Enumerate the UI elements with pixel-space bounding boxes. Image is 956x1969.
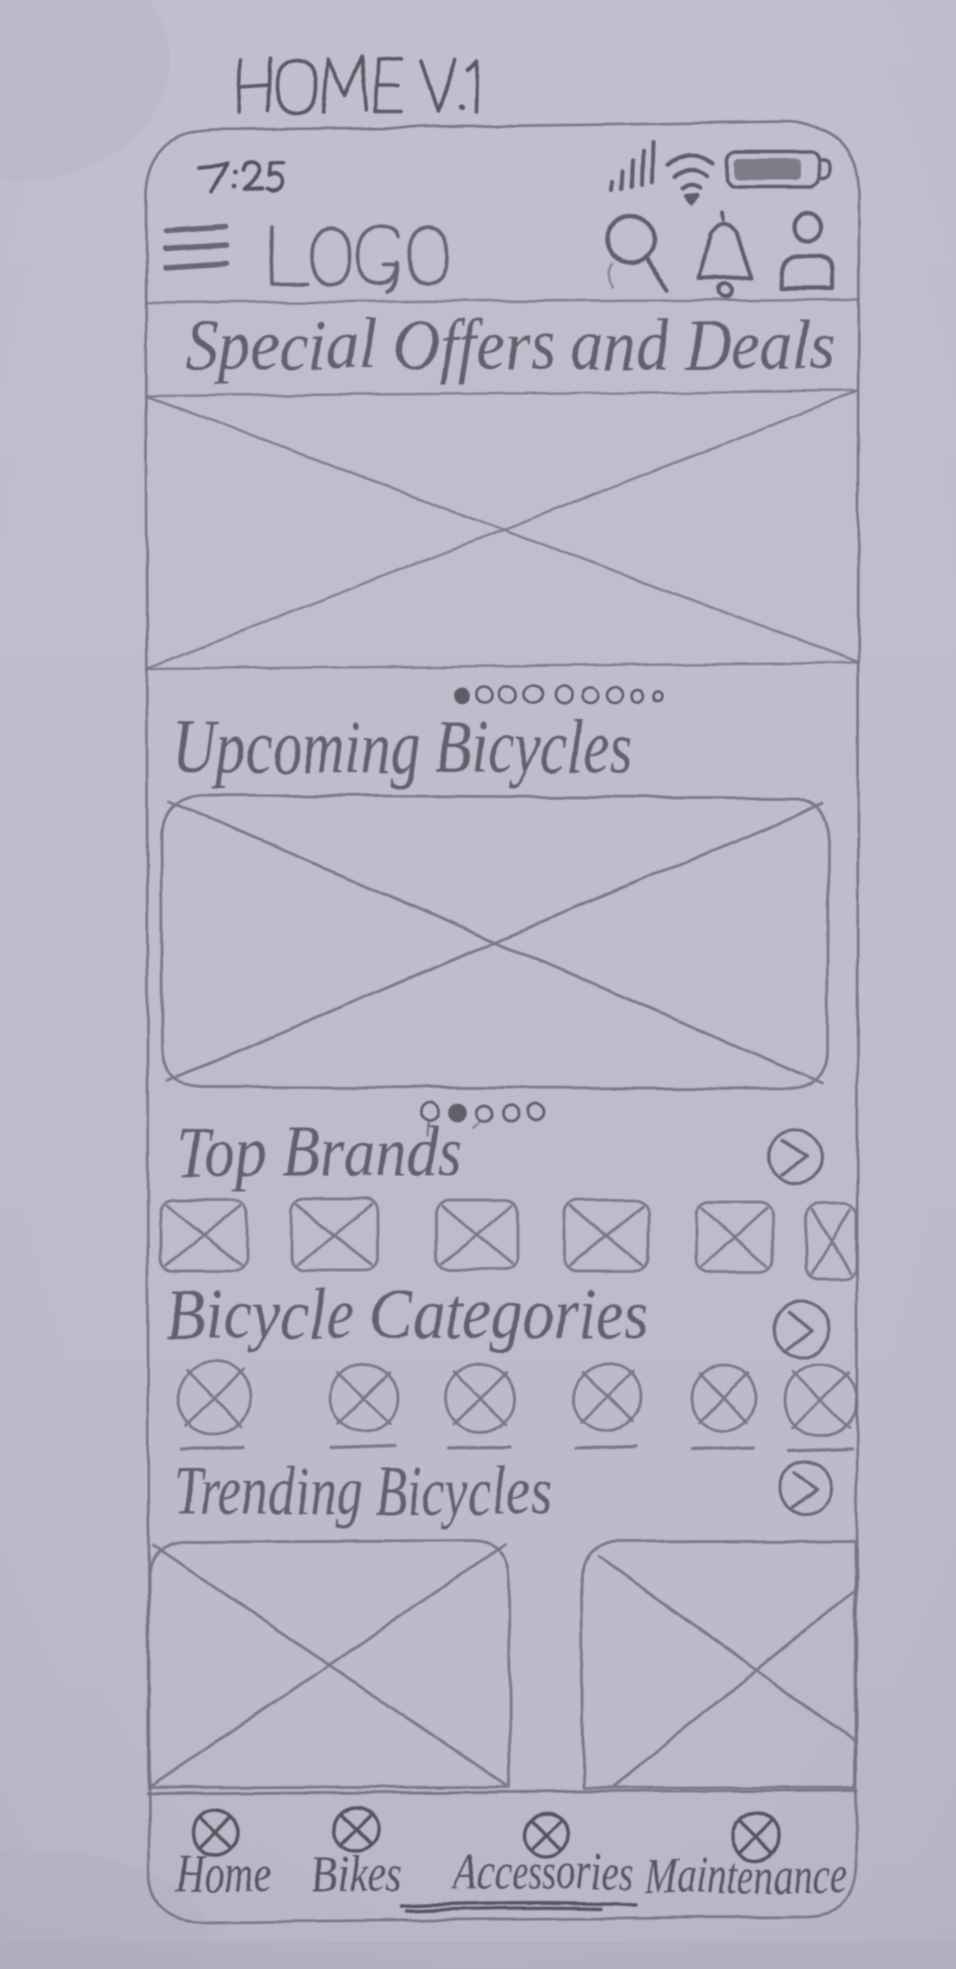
svg-text:Home: Home [175,1846,271,1903]
svg-text:Trending Bicycles: Trending Bicycles [173,1453,551,1530]
svg-text:Bikes: Bikes [311,1846,402,1903]
svg-text:Maintenance: Maintenance [644,1848,847,1905]
svg-text:Bicycle Categories: Bicycle Categories [167,1274,649,1354]
svg-text:Special Offers and Deals: Special Offers and Deals [186,305,836,385]
svg-text:Accessories: Accessories [452,1844,633,1901]
svg-text:Upcoming Bicycles: Upcoming Bicycles [173,705,633,789]
svg-text:Top Brands: Top Brands [176,1112,462,1192]
